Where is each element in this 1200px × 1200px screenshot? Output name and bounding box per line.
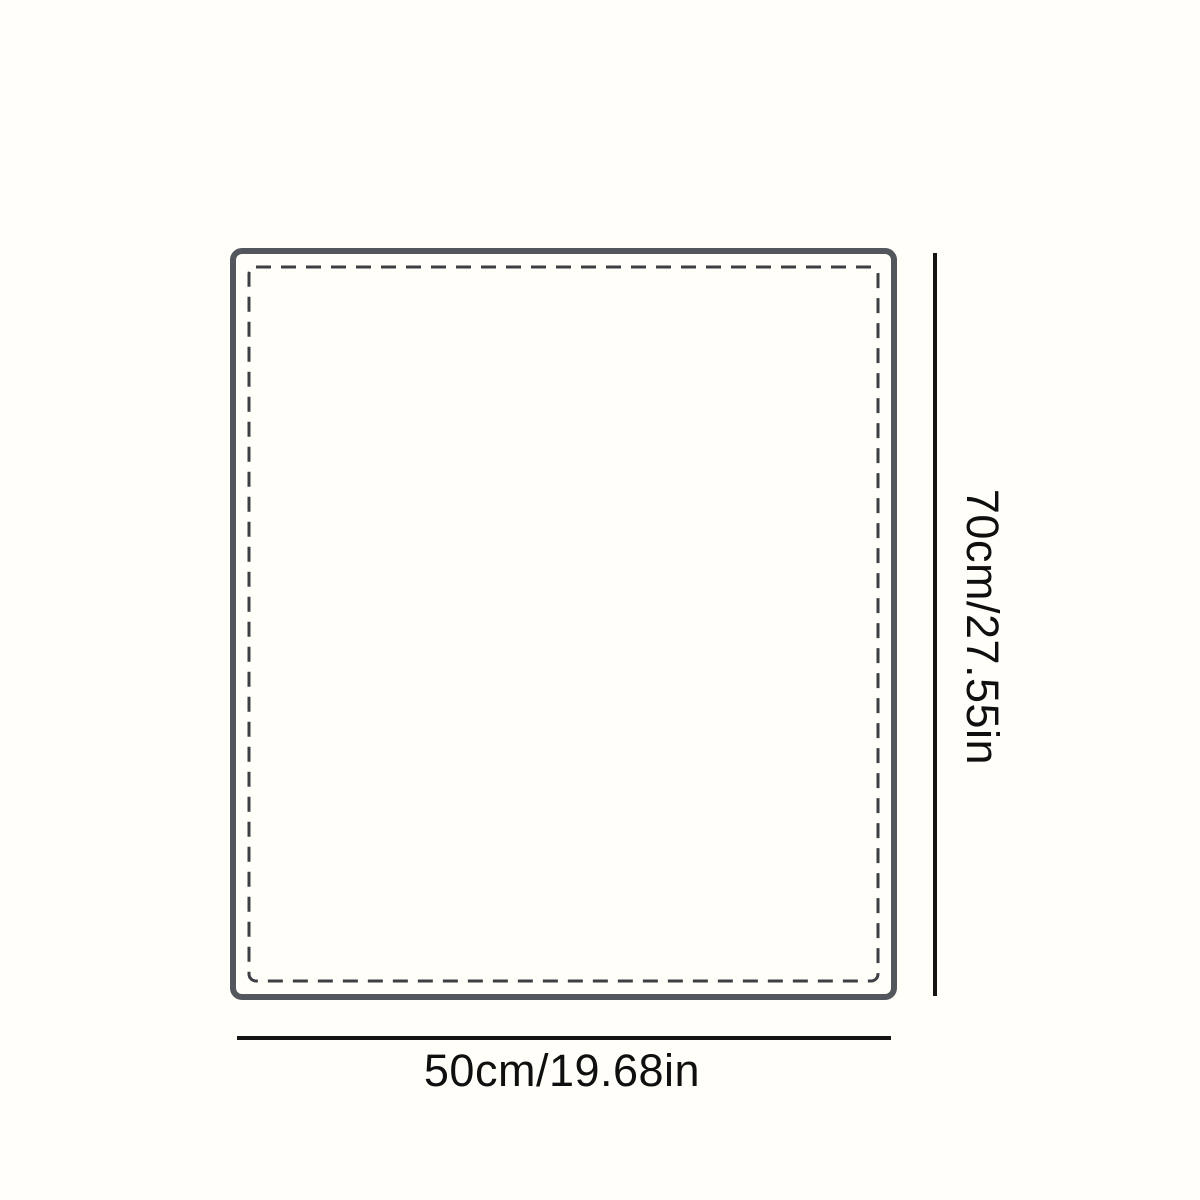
size-diagram: 70cm/27.55in 50cm/19.68in: [0, 0, 1200, 1200]
product-outline: [230, 248, 897, 1000]
height-dimension-line: [933, 253, 937, 996]
width-dimension-label: 50cm/19.68in: [424, 1045, 700, 1097]
height-dimension-label: 70cm/27.55in: [956, 489, 1008, 765]
width-dimension-line: [237, 1036, 891, 1040]
stitch-dashed-border: [236, 254, 891, 994]
